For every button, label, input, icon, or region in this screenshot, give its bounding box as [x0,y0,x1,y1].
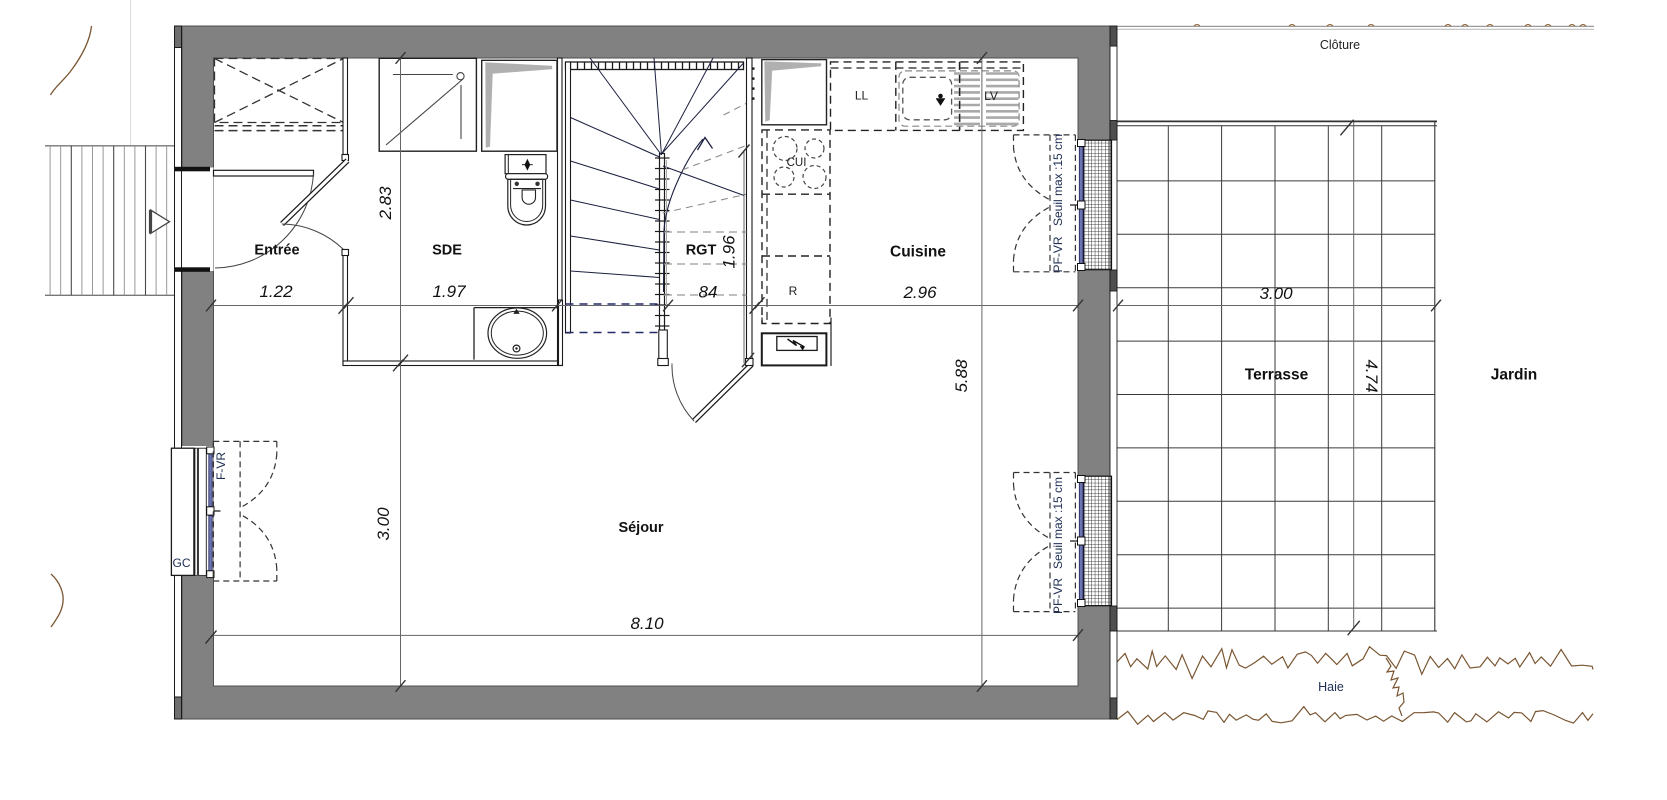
svg-text:Clôture: Clôture [1320,38,1360,52]
svg-text:8.10: 8.10 [630,614,664,633]
svg-text:Seuil max :15 cm: Seuil max :15 cm [1051,477,1065,569]
svg-text:F-VR: F-VR [214,452,228,480]
svg-text:84: 84 [699,283,718,302]
svg-text:SDE: SDE [432,243,462,259]
svg-text:LL: LL [855,89,869,103]
svg-text:5.88: 5.88 [952,359,971,393]
svg-text:LV: LV [984,89,998,103]
svg-text:Cuisine: Cuisine [890,244,946,261]
svg-text:Haie: Haie [1318,680,1344,694]
svg-text:3.00: 3.00 [374,507,393,541]
svg-text:Séjour: Séjour [618,520,663,536]
svg-text:R: R [789,284,798,298]
svg-text:PF-VR: PF-VR [1051,236,1065,272]
svg-text:2.96: 2.96 [902,283,937,302]
svg-text:RGT: RGT [686,243,717,259]
svg-text:1.97: 1.97 [432,282,466,301]
svg-text:1.96: 1.96 [720,235,739,269]
svg-text:4.74: 4.74 [1362,359,1381,392]
svg-text:1.22: 1.22 [259,282,293,301]
svg-text:PF-VR: PF-VR [1051,578,1065,614]
svg-text:2.83: 2.83 [376,186,395,221]
svg-text:GC: GC [173,556,191,570]
svg-text:3.00: 3.00 [1259,284,1293,303]
svg-text:CUI: CUI [787,157,807,169]
svg-text:Jardin: Jardin [1491,367,1538,384]
svg-text:Terrasse: Terrasse [1245,367,1309,384]
svg-text:Seuil max :15 cm: Seuil max :15 cm [1051,134,1065,226]
svg-text:Entrée: Entrée [254,243,299,259]
